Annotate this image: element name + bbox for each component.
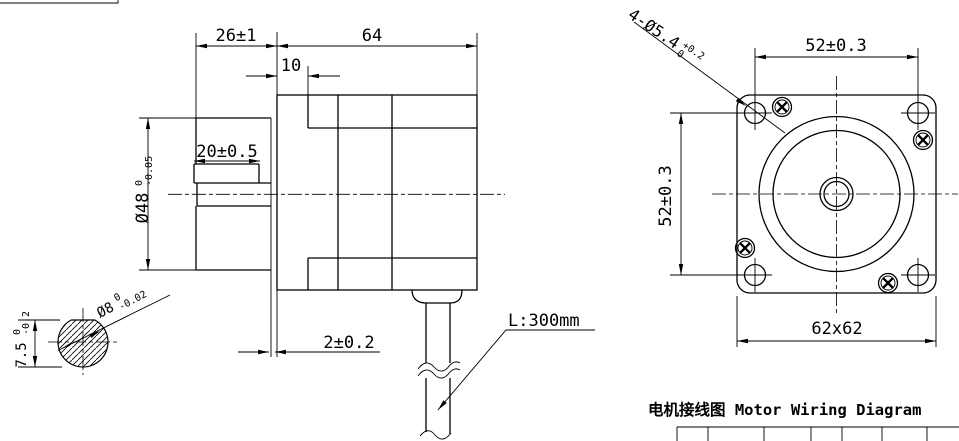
motor-body-outline xyxy=(277,95,477,290)
screw-icon xyxy=(914,131,933,150)
cable-length-leader: L:300mm xyxy=(438,311,595,410)
title-block-fragment xyxy=(0,0,118,3)
dim-front-length: 26±1 xyxy=(216,26,257,46)
dim-shaft-dia: Ø8 xyxy=(94,299,116,321)
screw-icon xyxy=(773,98,792,117)
mounting-holes-callout: 4-Ø5.4 +0.2 0 xyxy=(623,5,785,133)
dim-shaft-dia-lower: -0.02 xyxy=(117,289,149,313)
dim-mounting-holes: 4-Ø5.4 xyxy=(625,5,684,53)
dim-20: 20±0.5 xyxy=(194,142,260,163)
wiring-table-fragment xyxy=(677,427,959,441)
assembly-screws xyxy=(736,98,933,293)
motor-drawing-svg: 26±1 64 10 20±0.5 Ø48 0 -0.05 xyxy=(0,0,959,441)
dim-2: 2±0.2 xyxy=(238,333,380,354)
screw-icon xyxy=(736,239,755,258)
shaft-section-detail: 7.5 0 -0.2 Ø8 0 -0.02 xyxy=(12,280,170,375)
dim-shaft-flat: 7.5 xyxy=(14,342,30,367)
dim-52-horizontal: 52±0.3 xyxy=(755,36,918,103)
front-view: 52±0.3 52±0.3 62x62 4-Ø5.4 +0.2 0 xyxy=(623,5,958,347)
wiring-diagram-title: 电机接线图 Motor Wiring Diagram xyxy=(648,400,921,419)
dim-26-and-64: 26±1 64 xyxy=(196,26,477,118)
cable-length-label: L:300mm xyxy=(508,311,580,331)
dim-pilot-dia-lower: -0.05 xyxy=(144,156,155,186)
dim-shaft-flat-lower: -0.2 xyxy=(21,311,32,335)
dim-flange-thickness: 2±0.2 xyxy=(323,333,374,353)
front-view-centerlines xyxy=(712,76,958,314)
dim-step: 10 xyxy=(281,56,301,76)
wiring-diagram-section: 电机接线图 Motor Wiring Diagram xyxy=(648,400,959,441)
dim-flat-length: 20±0.5 xyxy=(196,142,257,162)
dim-hole-spacing-h: 52±0.3 xyxy=(805,36,866,56)
dim-10: 10 xyxy=(246,56,340,95)
screw-icon xyxy=(879,274,898,293)
dim-pilot-dia: Ø48 xyxy=(133,193,153,224)
dim-52-vertical: 52±0.3 xyxy=(656,113,741,275)
dim-body-length: 64 xyxy=(362,26,382,46)
shaft-outline xyxy=(194,164,271,206)
dim-flange-size: 62x62 xyxy=(811,319,862,339)
dim-hole-spacing-v: 52±0.3 xyxy=(656,165,676,226)
side-view: 26±1 64 10 20±0.5 Ø48 0 -0.05 xyxy=(12,26,595,439)
cable-outline xyxy=(412,290,462,439)
technical-drawing-canvas: 26±1 64 10 20±0.5 Ø48 0 -0.05 xyxy=(0,0,959,441)
